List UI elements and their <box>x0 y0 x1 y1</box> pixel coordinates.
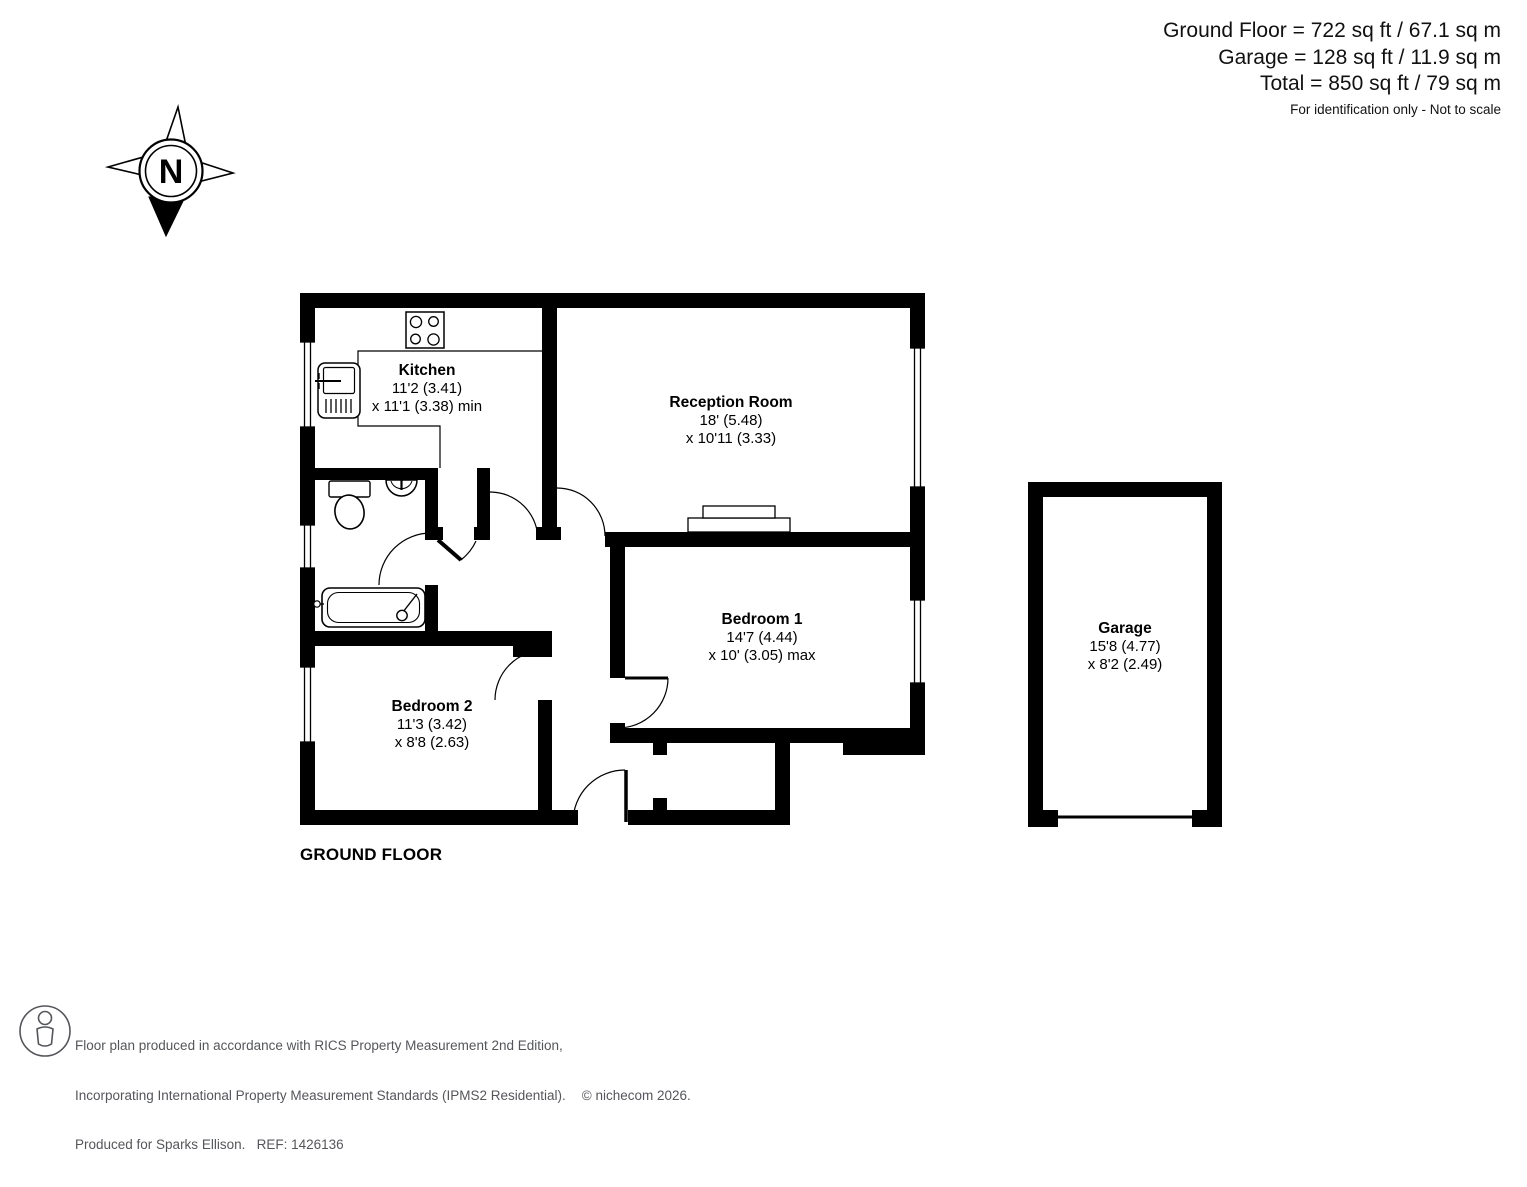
bedroom1-door <box>618 678 668 728</box>
footer-line3: Produced for Sparks Ellison. REF: 142613… <box>75 1137 691 1154</box>
reception-room-label: Reception Room 18' (5.48) x 10'11 (3.33) <box>669 394 792 448</box>
room-dim: 11'2 (3.41) <box>372 380 482 398</box>
toilet-icon <box>329 481 370 531</box>
compass-north-label: N <box>159 153 184 191</box>
kitchen-door-arc <box>490 492 538 540</box>
reception-door-arc <box>557 488 605 536</box>
footer-line1: Floor plan produced in accordance with R… <box>75 1038 691 1055</box>
room-name: Bedroom 1 <box>708 611 815 629</box>
room-name: Garage <box>1088 620 1163 638</box>
room-dim: 18' (5.48) <box>669 412 792 430</box>
kitchen-window <box>300 342 315 427</box>
room-dim: 11'3 (3.42) <box>392 716 473 734</box>
room-name: Bedroom 2 <box>392 698 473 716</box>
room-dim: x 8'8 (2.63) <box>392 734 473 752</box>
room-dim: 14'7 (4.44) <box>708 629 815 647</box>
bedroom2-window <box>300 667 315 742</box>
floor-plan-svg: N <box>0 0 1527 1080</box>
room-dim: x 11'1 (3.38) min <box>372 398 482 416</box>
bedroom1-label: Bedroom 1 14'7 (4.44) x 10' (3.05) max <box>708 611 815 665</box>
floor-title: GROUND FLOOR <box>300 845 442 865</box>
bathroom-window <box>300 525 315 568</box>
front-door <box>573 770 626 822</box>
cupboard-door <box>438 540 476 560</box>
bathroom-door-arc <box>379 533 431 585</box>
sink-icon <box>315 363 360 418</box>
room-dim: x 10'11 (3.33) <box>669 430 792 448</box>
person-icon <box>20 1006 70 1056</box>
room-dim: 15'8 (4.77) <box>1088 638 1163 656</box>
room-dim: x 8'2 (2.49) <box>1088 656 1163 674</box>
room-name: Reception Room <box>669 394 792 412</box>
reception-window <box>910 348 925 487</box>
fireplace-icon <box>688 506 790 532</box>
bedroom2-label: Bedroom 2 11'3 (3.42) x 8'8 (2.63) <box>392 698 473 752</box>
bedroom2-door-arc <box>495 650 545 700</box>
footer-copyright: © nichecom 2026. <box>582 1088 691 1103</box>
bath-icon <box>311 588 425 627</box>
room-name: Kitchen <box>372 362 482 380</box>
room-dim: x 10' (3.05) max <box>708 647 815 665</box>
footer-line2-row: Incorporating International Property Mea… <box>75 1088 691 1105</box>
hob-icon <box>406 312 444 348</box>
kitchen-label: Kitchen 11'2 (3.41) x 11'1 (3.38) min <box>372 362 482 416</box>
garage-label: Garage 15'8 (4.77) x 8'2 (2.49) <box>1088 620 1163 674</box>
floorplan-page: Ground Floor = 722 sq ft / 67.1 sq m Gar… <box>0 0 1527 1080</box>
bedroom1-window <box>910 600 925 683</box>
footer-line2: Incorporating International Property Mea… <box>75 1088 566 1103</box>
compass-icon: N <box>108 107 233 236</box>
footer-disclaimer: Floor plan produced in accordance with R… <box>75 1005 691 1187</box>
